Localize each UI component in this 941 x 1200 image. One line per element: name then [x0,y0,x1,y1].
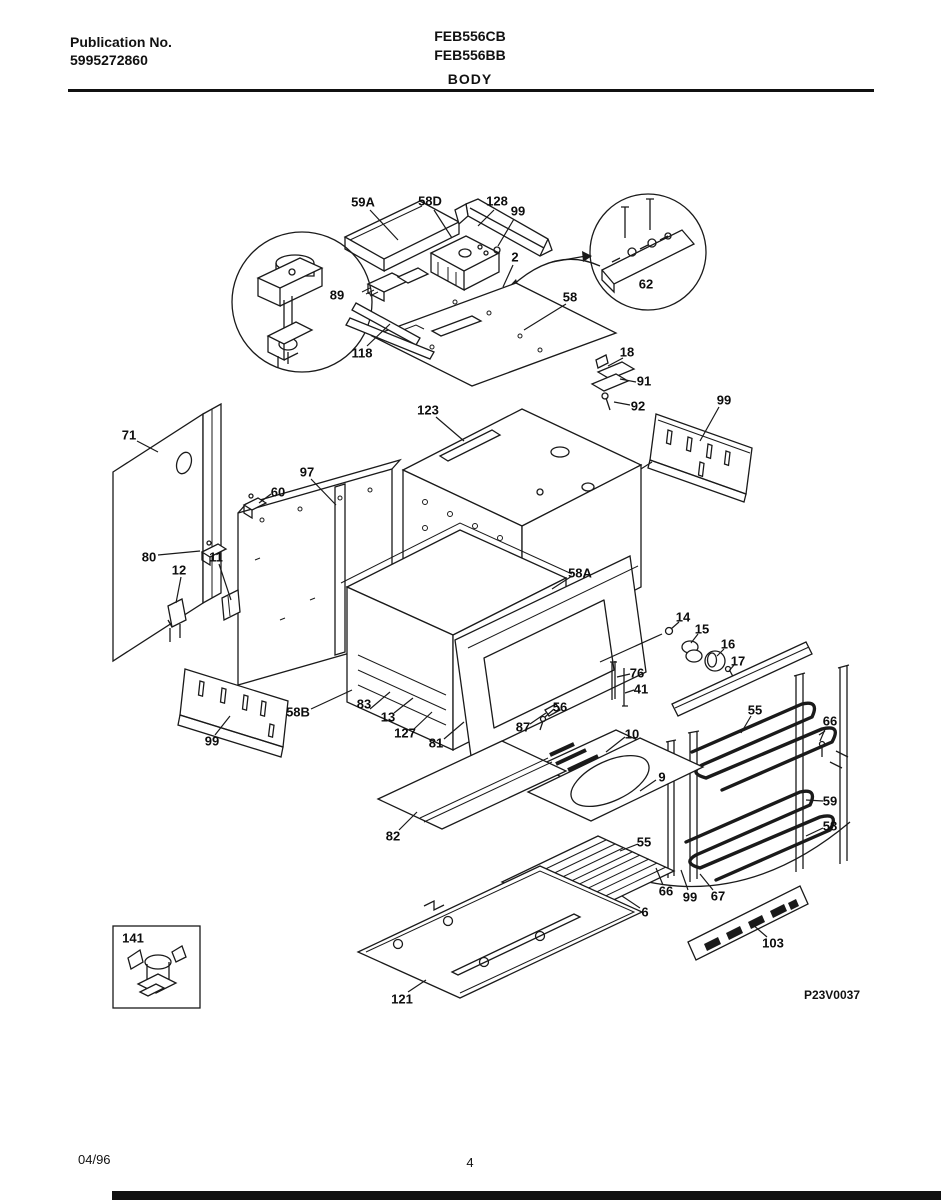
broil-element-55 [692,703,848,790]
footer-page-number: 4 [380,1155,560,1170]
switch-block-58D [431,236,499,290]
broil-pan-9 [528,738,703,821]
manual-page: Publication No. 5995272860 FEB556CB FEB5… [0,0,941,1200]
footer-date: 04/96 [78,1152,111,1167]
exploded-diagram-drawing [0,0,941,1200]
bake-element-58 [686,791,833,880]
footer-bar [112,1191,941,1200]
element-wire-67 [632,822,850,887]
side-panel-71 [113,404,221,661]
diagram-code: P23V0037 [770,988,860,1002]
insulation-block-59A [345,201,459,271]
inset-box-141 [113,926,200,1008]
front-trim-103 [688,886,808,960]
detail-circle-62 [552,194,706,310]
slotted-panel-99 [178,669,288,757]
